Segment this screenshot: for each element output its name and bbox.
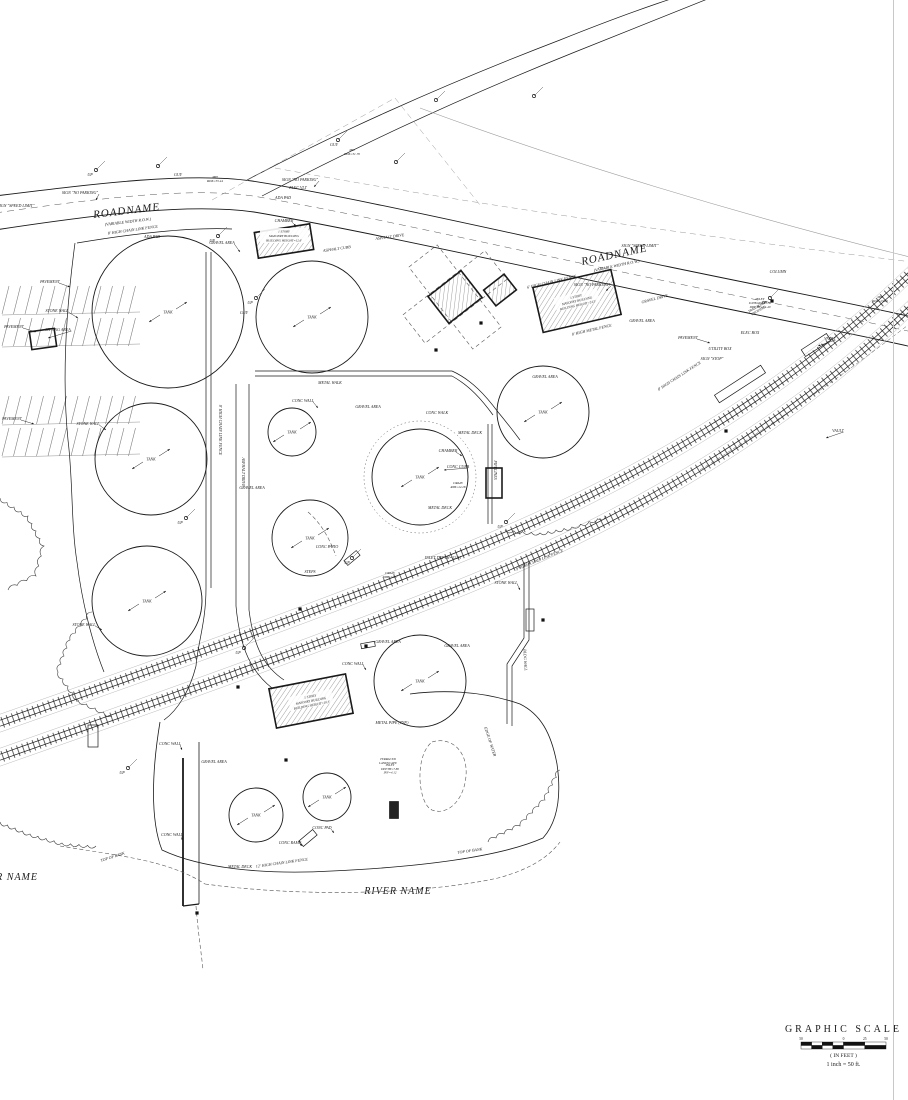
annotation-label: CONC WALL — [161, 832, 184, 837]
annotation-label: CONC WALL — [342, 661, 365, 666]
building-callout-label: MASONRY BUILDING — [268, 234, 300, 238]
annotation: ADA PAD — [143, 234, 160, 239]
rail — [0, 273, 908, 729]
utility-mark — [298, 607, 301, 610]
annotation: UP — [761, 300, 767, 305]
annotation: CONC WALL — [342, 661, 366, 670]
scale-bar-cell — [833, 1042, 844, 1046]
annotation-label: PAVEMENT — [3, 324, 25, 329]
annotation-label: SIGN "SPEED LIMIT" — [0, 203, 35, 208]
annotation-label: CONC CURB — [447, 464, 470, 469]
annotation: SIGN "NO PARKING" — [62, 190, 99, 200]
rail — [0, 301, 908, 757]
annotation-label: PAVEMENT — [39, 279, 61, 284]
annotation: GRAVEL AREA — [532, 374, 558, 379]
tank: TANK — [95, 403, 207, 515]
annotation-label: GRAVEL AREA — [201, 759, 227, 764]
road-line — [262, 0, 725, 196]
building-callout-label: BUILDING HEIGHT=12.6' — [266, 238, 302, 242]
annotation-label: STONE WALL — [45, 308, 69, 313]
annotation-label: METAL DECK — [457, 430, 482, 435]
annotation: MHRIM=31.70 — [343, 148, 360, 156]
leader-line — [59, 283, 70, 287]
annotation-label: ELEC BOX — [740, 330, 760, 335]
annotation-label: UP — [761, 300, 767, 305]
site-line — [236, 384, 272, 688]
building-outline — [484, 274, 517, 306]
tank-label: TANK — [146, 458, 156, 462]
annotation: STONE WALL — [494, 580, 520, 590]
scale-tick: 25 — [863, 1037, 867, 1041]
annotation-label: GRAVEL AREA — [444, 643, 470, 648]
utility-mark — [195, 911, 198, 914]
road-name-label: ROADNAME(VARIABLE WIDTH R.O.W.) — [579, 242, 650, 275]
scale-bar-cell — [812, 1042, 823, 1046]
annotation-label: VAULT — [824, 336, 837, 341]
graphic-scale-title: GRAPHIC SCALE — [785, 1024, 902, 1035]
annotation-label: SIGN "NO PARKING" — [282, 177, 318, 182]
annotation: CONC PATIO — [316, 544, 339, 549]
annotation: TOP OF BANK — [100, 850, 126, 863]
annotation: ASPHALT DRIVE — [374, 232, 405, 241]
annotation-label: SIGN "NO PARKING" — [62, 190, 98, 195]
guy-wire — [396, 153, 405, 162]
annotation: GRAVEL AREA — [629, 318, 655, 323]
river-name-label: RIVER NAME — [0, 872, 38, 883]
utility-mark — [541, 618, 544, 621]
annotation-label: 12' HIGH CHAIN LINK FENCE — [255, 856, 308, 868]
annotation: METAL DECK — [427, 505, 452, 510]
tank-label: TANK — [415, 476, 425, 480]
annotation-label: STONE WALL — [494, 580, 518, 585]
annotation-label: 8' HIGH CHAIN LINK FENCE — [218, 405, 223, 456]
site-line — [249, 384, 284, 680]
annotation-label: SITTING AREA — [45, 327, 71, 332]
tank-label: TANK — [287, 431, 297, 435]
building-callout-label: 1 STORY — [278, 230, 291, 234]
annotation: DRAINRIM=22.28 — [450, 481, 466, 489]
annotation: UTILITY BOX — [708, 346, 732, 351]
annotation: GUY — [174, 172, 183, 177]
annotation-label: UP — [87, 172, 93, 177]
annotation: 8' HIGH CHAIN LINK FENCE — [657, 360, 702, 392]
annotation-label: PIPELINES — [493, 459, 498, 479]
annotation-label: CONC PAD — [312, 825, 331, 830]
scale-bar-cell — [833, 1046, 844, 1050]
annotation-label: CONC WALK — [426, 410, 449, 415]
annotation: ELEC VLT — [288, 185, 307, 190]
annotation: ELEC BOX — [740, 330, 760, 335]
annotation: UP — [497, 524, 503, 529]
rail — [0, 307, 908, 763]
road-line — [395, 98, 480, 205]
utility-mark — [364, 644, 367, 647]
scale-bar-cell — [865, 1046, 886, 1050]
scale-ratio: 1 inch = 50 ft. — [827, 1061, 861, 1068]
pad-structure — [390, 802, 399, 819]
pad-structure — [714, 365, 765, 403]
site-line — [154, 692, 559, 872]
guy-wire — [96, 161, 105, 170]
scale-bar-cell — [812, 1046, 823, 1050]
leader-line — [68, 312, 78, 318]
tank-label: TANK — [307, 316, 317, 320]
annotation: COLUMN — [770, 269, 787, 274]
annotation: CONC WALL — [292, 398, 318, 408]
guy-wire — [534, 87, 543, 96]
leader-line — [234, 244, 240, 252]
site-line — [65, 243, 104, 672]
building — [484, 274, 517, 306]
utility-mark — [434, 348, 437, 351]
annotation: STEPS — [304, 569, 315, 574]
annotation-label: CHAMBER — [275, 218, 294, 223]
site-line — [507, 562, 524, 724]
annotation: UP — [344, 560, 350, 565]
annotation: PAVEMENT — [1, 416, 34, 424]
annotation-label: SIGN "NO PARKING" — [574, 282, 610, 287]
tank: TANK — [92, 236, 244, 388]
annotation: BLDG WALL — [522, 649, 528, 671]
tank-label: TANK — [322, 796, 332, 800]
annotation-label: UP — [177, 520, 183, 525]
dashed-line — [308, 512, 336, 556]
pad-structure — [526, 609, 534, 631]
annotation-label: 8' HIGH CHAIN LINK FENCE — [657, 360, 702, 392]
annotation-label: GUY — [240, 310, 249, 315]
annotation: UP — [87, 172, 93, 177]
guy-wire — [506, 513, 515, 522]
annotation-label: GUY — [330, 142, 339, 147]
leader-line — [517, 584, 520, 590]
annotation-label: CHAMBER — [439, 448, 458, 453]
annotation: CONC WALL — [159, 741, 182, 750]
annotation-label: COLUMN — [770, 269, 787, 274]
annotation-label: UP — [235, 650, 241, 655]
annotation-label: TOP OF BANK — [457, 846, 483, 854]
tank: TANK — [272, 500, 348, 576]
annotation-label: RIM=22.87 — [382, 575, 398, 579]
annotation: STONE WALL — [76, 421, 106, 430]
annotation-label: INLET DEPTH=22.81 — [424, 555, 461, 560]
building: 1 STORYMASONRY BUILDINGBUILDING HEIGHT=1… — [269, 674, 353, 728]
road-line — [247, 0, 715, 180]
annotation: GRAVEL AREA — [201, 759, 227, 764]
annotation-label: RIM=33.44 — [206, 179, 223, 183]
utility-pole — [532, 87, 543, 98]
tank-label: TANK — [163, 311, 173, 315]
annotation: METAL PIPE (TYP.) — [374, 720, 409, 725]
annotation: TOP OF BANK — [457, 846, 483, 854]
annotation-label: CONC PATIO — [316, 544, 339, 549]
annotation-label: ADA PAD — [274, 195, 291, 200]
annotation: CONC WALL — [161, 832, 184, 840]
annotation: VAULT — [826, 428, 845, 438]
annotation-label: GUY — [174, 172, 183, 177]
annotation: UP — [235, 650, 241, 655]
dashed-line — [700, 322, 908, 470]
annotation: GUY — [240, 310, 249, 315]
railroad-track — [0, 261, 908, 735]
annotation: ASPHALT CURB — [322, 244, 352, 253]
annotation: CHAMBER — [439, 448, 462, 456]
scale-tick: 50 — [884, 1037, 888, 1041]
annotation-label: CONC RAMP — [279, 840, 302, 845]
annotation: METAL DECK — [227, 864, 252, 869]
guy-wire — [128, 759, 137, 768]
tank: TANK — [374, 635, 466, 727]
tank-label: TANK — [415, 680, 425, 684]
site-line — [512, 562, 529, 726]
annotation-label: CONC WALL — [292, 398, 315, 403]
annotation: UP — [209, 238, 215, 243]
annotation-label: UP — [209, 238, 215, 243]
annotation-label: ASPHALT CURB — [322, 244, 352, 253]
tank-label: TANK — [538, 411, 548, 415]
tree-line — [0, 822, 96, 848]
annotation-label: GRAVEL AREA — [375, 639, 401, 644]
road-line — [275, 168, 908, 262]
annotation: EDGE OF WATER — [483, 725, 498, 757]
scale-bar-cell — [801, 1042, 812, 1046]
site-plan-drawing: TANKTANKTANKTANKTANKTANKTANKTANKTANKTANK… — [0, 0, 908, 1100]
annotation: PIPELINES — [493, 459, 498, 479]
pad-structure — [361, 641, 376, 648]
utility-mark — [284, 758, 287, 761]
utility-pole — [394, 153, 405, 164]
pad-structure — [299, 830, 317, 847]
tree-line — [0, 498, 44, 590]
annotation: GRAVEL AREA — [444, 643, 470, 648]
dashed-line — [196, 906, 203, 970]
guy-wire — [352, 549, 361, 558]
tree-line — [488, 770, 560, 842]
utility-mark — [236, 685, 239, 688]
site-line — [164, 666, 196, 720]
utility-pole — [504, 513, 515, 524]
annotation: 12' HIGH CHAIN LINK FENCE — [255, 856, 308, 868]
annotation: STONE WALL — [45, 308, 78, 318]
annotation: GUY — [330, 142, 339, 147]
annotation-label: GRAVEL AREA — [532, 374, 558, 379]
site-line — [452, 376, 493, 415]
parking-stripes — [2, 286, 140, 315]
annotation-label: SIGN "STOP" — [701, 356, 724, 361]
road-line — [420, 108, 908, 258]
tank: TANK — [364, 421, 476, 533]
utility-pole — [768, 289, 779, 300]
tank-label: TANK — [305, 537, 315, 541]
annotation: CHAMBER — [275, 218, 296, 226]
annotation-label: INV=4.12 — [383, 771, 397, 775]
annotation-label: BLDG WALL — [522, 649, 528, 671]
tank: TANK — [268, 408, 316, 456]
annotation-label: ADA PAD — [143, 234, 160, 239]
tank-label: TANK — [251, 814, 261, 818]
scale-bar-cell — [801, 1046, 812, 1050]
tank: TANK — [256, 261, 368, 373]
annotation-label: UP — [119, 770, 125, 775]
annotation-label: ASPHALT DRIVE — [241, 456, 246, 487]
annotation-label: METAL DECK — [227, 864, 252, 869]
annotation-label: VAULT — [832, 428, 845, 433]
scale-tick: 0 — [843, 1037, 845, 1041]
scale-bar-cell — [822, 1042, 833, 1046]
annotation: UP — [119, 770, 125, 775]
annotation: CONC WALK — [426, 410, 449, 415]
annotation: CONC RAMP — [279, 840, 302, 846]
utility-pole — [94, 161, 105, 172]
tank: TANK — [92, 546, 202, 656]
annotation: ADA PAD — [274, 195, 291, 200]
annotation: METAL DECK — [457, 430, 482, 435]
site-line — [196, 252, 206, 666]
annotation-label: ELEC VLT — [288, 185, 307, 190]
railroad-track — [0, 295, 908, 769]
annotation: GRAVEL AREA — [355, 404, 381, 409]
annotation-label: CONC WALL — [159, 741, 182, 746]
site-line — [183, 904, 199, 906]
leader-line — [21, 420, 34, 424]
annotation-label: GRAVEL AREA — [629, 318, 655, 323]
annotation-label: GRAVEL AREA — [355, 404, 381, 409]
graphic-scale: GRAPHIC SCALE5002550( IN FEET )1 inch = … — [785, 1024, 902, 1068]
building-callout: 1 STORYMASONRY BUILDINGBUILDING HEIGHT=1… — [260, 228, 308, 243]
scale-bar-cell — [822, 1046, 833, 1050]
annotation-label: EDGE OF WATER — [483, 725, 498, 757]
guy-wire — [158, 157, 167, 166]
tank: TANK — [303, 773, 351, 821]
annotation-label: UP — [247, 300, 253, 305]
annotation: SIGN "SPEED LIMIT" — [0, 203, 35, 208]
annotation-label: STONE WALL — [72, 622, 96, 627]
annotation: MHRIM=23.82 — [871, 295, 888, 303]
annotation: SIGN "STOP" — [701, 356, 724, 361]
annotation: CONC PAD — [312, 825, 334, 833]
annotation-label: PAVEMENT — [1, 416, 23, 421]
annotation: DRAINRIM=22.87 — [382, 571, 398, 579]
annotation-label: UP — [497, 524, 503, 529]
guy-wire — [436, 91, 445, 100]
utility-pole — [126, 759, 137, 770]
annotation-label: RIM=23.82 — [871, 299, 888, 303]
annotation: GRAVEL AREA — [375, 639, 401, 644]
utility-pole — [434, 91, 445, 102]
utility-pole — [184, 509, 195, 520]
annotation: PAVEMENT — [677, 335, 710, 343]
guy-wire — [256, 289, 265, 298]
annotation-label: LANDSCAPE — [378, 761, 397, 765]
guy-wire — [770, 289, 779, 298]
annotation: MHRIM=33.44 — [206, 175, 223, 183]
annotation-label: METAL WALK — [317, 380, 342, 385]
scale-bar-cell — [844, 1042, 865, 1046]
annotation: CONC CURB — [444, 464, 470, 470]
annotation-label: STEPS — [304, 569, 315, 574]
annotation: 8' HIGH CHAIN LINK FENCE — [218, 405, 223, 456]
annotation-label: ASPHALT DRIVE — [374, 232, 405, 241]
annotation: UP — [177, 520, 183, 525]
annotation-label: STONE WALL — [76, 421, 100, 426]
annotation: UP — [247, 300, 253, 305]
annotation-label: UTILITY BOX — [708, 346, 732, 351]
tank: TANK — [229, 788, 283, 842]
tank: TANK — [497, 366, 589, 458]
annotation-label: PAVEMENT — [677, 335, 699, 340]
river-name-label: RIVER NAME — [363, 886, 431, 897]
annotation-label: RIM=22.28 — [450, 485, 466, 489]
utility-pole — [156, 157, 167, 168]
building-outline — [428, 271, 482, 324]
scale-units: ( IN FEET ) — [830, 1052, 857, 1059]
annotation: SITTING AREA — [45, 327, 71, 338]
scale-tick: 50 — [799, 1037, 803, 1041]
tank-label: TANK — [142, 600, 152, 604]
scale-bar-cell — [865, 1042, 886, 1046]
scale-bar-cell — [844, 1046, 865, 1050]
utility-mark — [479, 321, 482, 324]
parking-stripes — [2, 428, 140, 457]
annotation: METAL WALK — [317, 380, 342, 385]
leader-line — [697, 339, 710, 343]
annotation: TERRACEDLANDSCAPE — [378, 757, 397, 765]
annotation: INLET DEPTH=22.81 — [424, 555, 461, 560]
survey-sheet: TANKTANKTANKTANKTANKTANKTANKTANKTANKTANK… — [0, 0, 908, 1100]
annotation-label: TOP OF BANK — [100, 850, 126, 863]
annotation-label: RIM=31.70 — [343, 152, 360, 156]
annotation-label: METAL PIPE (TYP.) — [374, 720, 409, 725]
annotation: ASPHALT DRIVE — [241, 456, 246, 487]
dashed-line — [420, 741, 466, 812]
annotation-label: UP — [344, 560, 350, 565]
parking-stripes — [2, 318, 140, 347]
guy-wire — [186, 509, 195, 518]
annotation-label: METAL DECK — [427, 505, 452, 510]
utility-mark — [724, 429, 727, 432]
annotation: PAVEMENT — [39, 279, 70, 287]
railroad-ties — [0, 270, 908, 726]
